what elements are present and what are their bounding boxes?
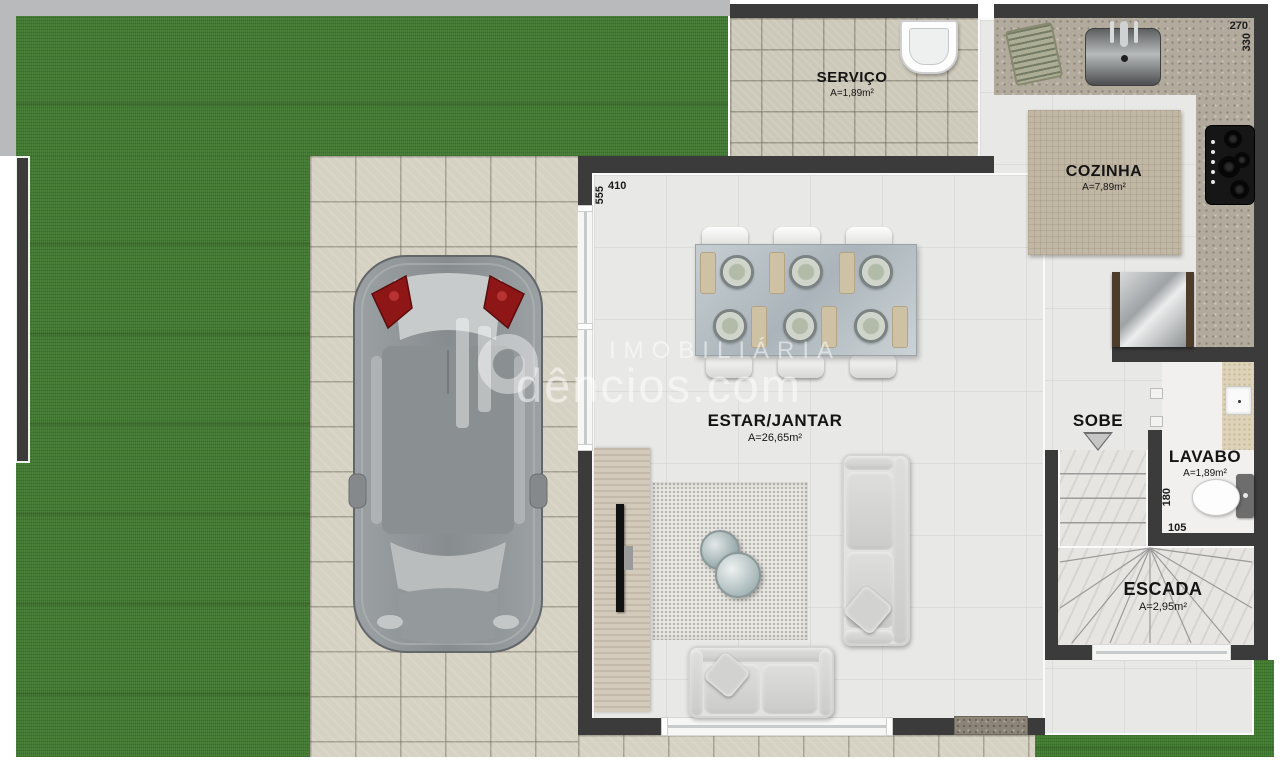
grass-left-yard [16, 156, 310, 757]
wall-escada-bottom-1 [1045, 645, 1093, 660]
room-name: SERVIÇO [792, 70, 912, 87]
wall-living-bottom-3 [1028, 718, 1045, 735]
wall-top-cozinha [994, 4, 1268, 18]
sofa-cushion [846, 472, 894, 550]
window-sash [578, 445, 592, 450]
kitchen-sink [1085, 28, 1161, 86]
room-label-sobe: SOBE [1048, 412, 1148, 431]
wall-below-fridge [1112, 347, 1254, 362]
sofa-three-seat [842, 454, 910, 646]
window-living-left [578, 206, 592, 450]
sofa-cushion [762, 664, 818, 714]
room-name: ESCADA [1098, 580, 1228, 600]
room-area: A=7,89m² [1044, 182, 1164, 193]
flush-button [1243, 493, 1248, 498]
room-area: A=1,89m² [1155, 468, 1255, 479]
dining-chair [706, 354, 752, 378]
wall-living-left-lower [578, 450, 592, 735]
room-area: A=1,89m² [792, 88, 912, 99]
wall-lavabo-left [1148, 430, 1162, 533]
room-label-estar-jantar: ESTAR/JANTAR A=26,65m² [675, 412, 875, 444]
plate [859, 255, 893, 289]
plate [854, 309, 888, 343]
laundry-tank [900, 20, 958, 74]
room-name: COZINHA [1044, 163, 1164, 181]
burner [1230, 180, 1249, 199]
wall-top-servico [730, 4, 978, 18]
sobe-arrow [1083, 432, 1113, 451]
wall-living-top [578, 156, 994, 173]
window-sash [578, 324, 592, 329]
plate [789, 255, 823, 289]
cooktop-knob [1211, 160, 1215, 164]
window-sash [887, 718, 892, 735]
fridge [1112, 272, 1194, 347]
door-jamb-lavabo [1150, 388, 1163, 399]
dimension-estar-width: 410 [608, 180, 626, 192]
place-mat [769, 252, 785, 294]
cooktop [1206, 126, 1254, 204]
cooktop-knob [1211, 140, 1215, 144]
washbasin [1225, 386, 1252, 415]
door-jamb-hall [1150, 416, 1163, 427]
room-label-servico: SERVIÇO A=1,89m² [792, 70, 912, 99]
dimension-estar-depth: 555 [594, 186, 606, 204]
burner [1218, 156, 1240, 178]
dimension-lavabo-depth: 180 [1161, 488, 1173, 506]
sofa-arm [690, 650, 703, 716]
entrance-threshold [954, 716, 1028, 735]
stairs-up-run [1058, 450, 1148, 546]
wall-escada-bottom-2 [1230, 645, 1254, 660]
window-living-bottom [662, 718, 892, 735]
dining-chair [850, 354, 896, 378]
sofa-arm [844, 456, 894, 470]
room-label-lavabo: LAVABO A=1,89m² [1155, 448, 1255, 479]
cooktop-knob [1211, 180, 1215, 184]
dimension-cozinha-depth: 330 [1241, 33, 1253, 51]
sidewalk-left [0, 16, 16, 156]
car-top-view [348, 252, 548, 656]
wall-living-left-upper [578, 173, 592, 206]
sofa-back [892, 456, 908, 644]
sofa-two-seat [688, 646, 834, 718]
wall-living-bottom-1 [578, 718, 662, 735]
window-glass [665, 725, 889, 728]
dining-chair [778, 354, 824, 378]
toilet-bowl [1192, 479, 1240, 516]
basin-drain [1238, 400, 1241, 403]
wall-living-bottom-2 [892, 718, 954, 735]
place-mat [751, 306, 767, 348]
window-glass [1096, 651, 1227, 654]
floor-plan: IMOBILIÁRIA dêncios.com SERVIÇO A=1,89m²… [0, 0, 1280, 766]
sidewalk-top [0, 0, 730, 16]
room-area: A=2,95m² [1098, 601, 1228, 613]
room-name: LAVABO [1155, 448, 1255, 467]
plate [713, 309, 747, 343]
faucet-icon [1120, 21, 1128, 47]
boundary-wall-left [17, 158, 28, 461]
place-mat [839, 252, 855, 294]
plate [783, 309, 817, 343]
patio-pavers-bottom [578, 735, 1035, 757]
room-name: ESTAR/JANTAR [675, 412, 875, 431]
cooktop-knob [1211, 150, 1215, 154]
tv [616, 504, 624, 612]
room-label-escada: ESCADA A=2,95m² [1098, 580, 1228, 613]
wall-right-house [1254, 4, 1268, 660]
window-sash [662, 718, 667, 735]
place-mat [700, 252, 716, 294]
tv-mount [624, 546, 633, 570]
sink-drain [1121, 55, 1128, 62]
room-area: A=26,65m² [675, 432, 875, 444]
stairs-direction-label: SOBE [1048, 412, 1148, 431]
burner [1224, 130, 1242, 148]
sofa-arm [819, 650, 832, 716]
cooktop-knob [1211, 170, 1215, 174]
dimension-cozinha-width: 270 [1200, 20, 1248, 32]
plate [720, 255, 754, 289]
sofa-back [690, 648, 832, 662]
grass-top-band [16, 16, 728, 156]
arrow-triangle-fill [1086, 434, 1110, 449]
place-mat [892, 306, 908, 348]
tank-basin [909, 28, 949, 65]
wall-stairs-left [1045, 450, 1058, 660]
dimension-lavabo-width: 105 [1168, 522, 1186, 534]
window-sash [578, 206, 592, 211]
room-label-cozinha: COZINHA A=7,89m² [1044, 163, 1164, 193]
place-mat [821, 306, 837, 348]
wall-lavabo-bottom [1148, 533, 1254, 546]
coffee-table [715, 552, 761, 598]
window-escada [1093, 645, 1230, 660]
